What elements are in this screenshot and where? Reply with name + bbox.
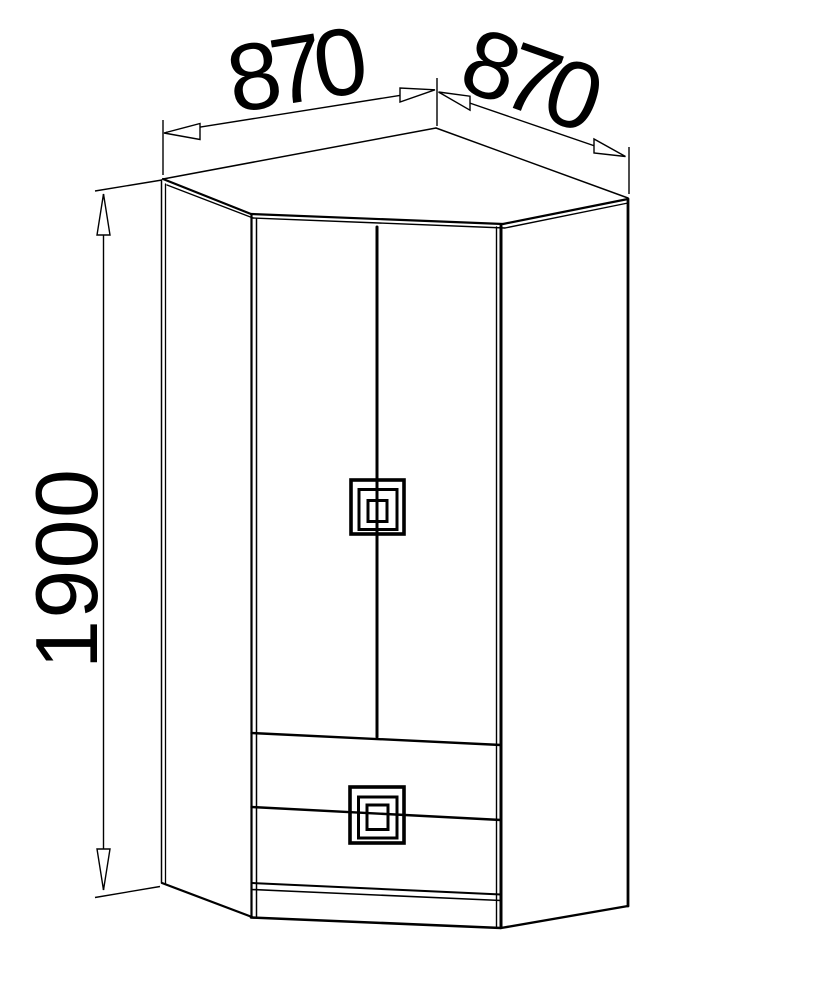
arrowhead-right-icon	[594, 139, 626, 157]
dimension-label-top-left: 870	[220, 6, 375, 133]
top-edge-front-right-inner	[505, 203, 628, 228]
arrowhead-right-icon	[400, 88, 435, 102]
drawer-handle-inner-square	[367, 805, 388, 830]
bottom-edge-front	[251, 918, 501, 929]
arrowhead-top-icon	[97, 194, 110, 235]
bottom-edge-right	[501, 906, 628, 928]
drawer-handle-middle-square	[359, 797, 398, 838]
extension-line-top	[95, 180, 162, 191]
corner-wardrobe-drawing: 870 870 1900	[0, 0, 816, 1000]
plinth-top-line-inner	[252, 890, 502, 901]
top-edge-front-left-outer	[163, 179, 251, 214]
drawer-divider-line	[252, 807, 502, 820]
top-edge-front-left-inner	[167, 185, 253, 218]
top-edge-back-left	[163, 128, 436, 179]
drawer-section	[252, 733, 502, 901]
drawer-handle	[350, 787, 404, 843]
dimension-height: 1900	[17, 180, 162, 898]
bottom-edge-left	[162, 883, 252, 917]
top-edge-back-right	[436, 128, 628, 198]
arrowhead-left-icon	[164, 124, 200, 140]
wardrobe-body	[162, 128, 629, 928]
dimension-label-height: 1900	[17, 469, 116, 669]
plinth-top-line	[252, 883, 502, 895]
technical-drawing-canvas: 870 870 1900	[0, 0, 816, 1000]
top-edge-front-right-outer	[503, 199, 628, 224]
dimension-top-right-width: 870	[439, 8, 630, 194]
dimension-label-top-right: 870	[449, 8, 616, 155]
dimension-top-left-width: 870	[163, 6, 437, 175]
extension-line-bottom	[95, 887, 160, 898]
arrowhead-bottom-icon	[97, 849, 110, 890]
